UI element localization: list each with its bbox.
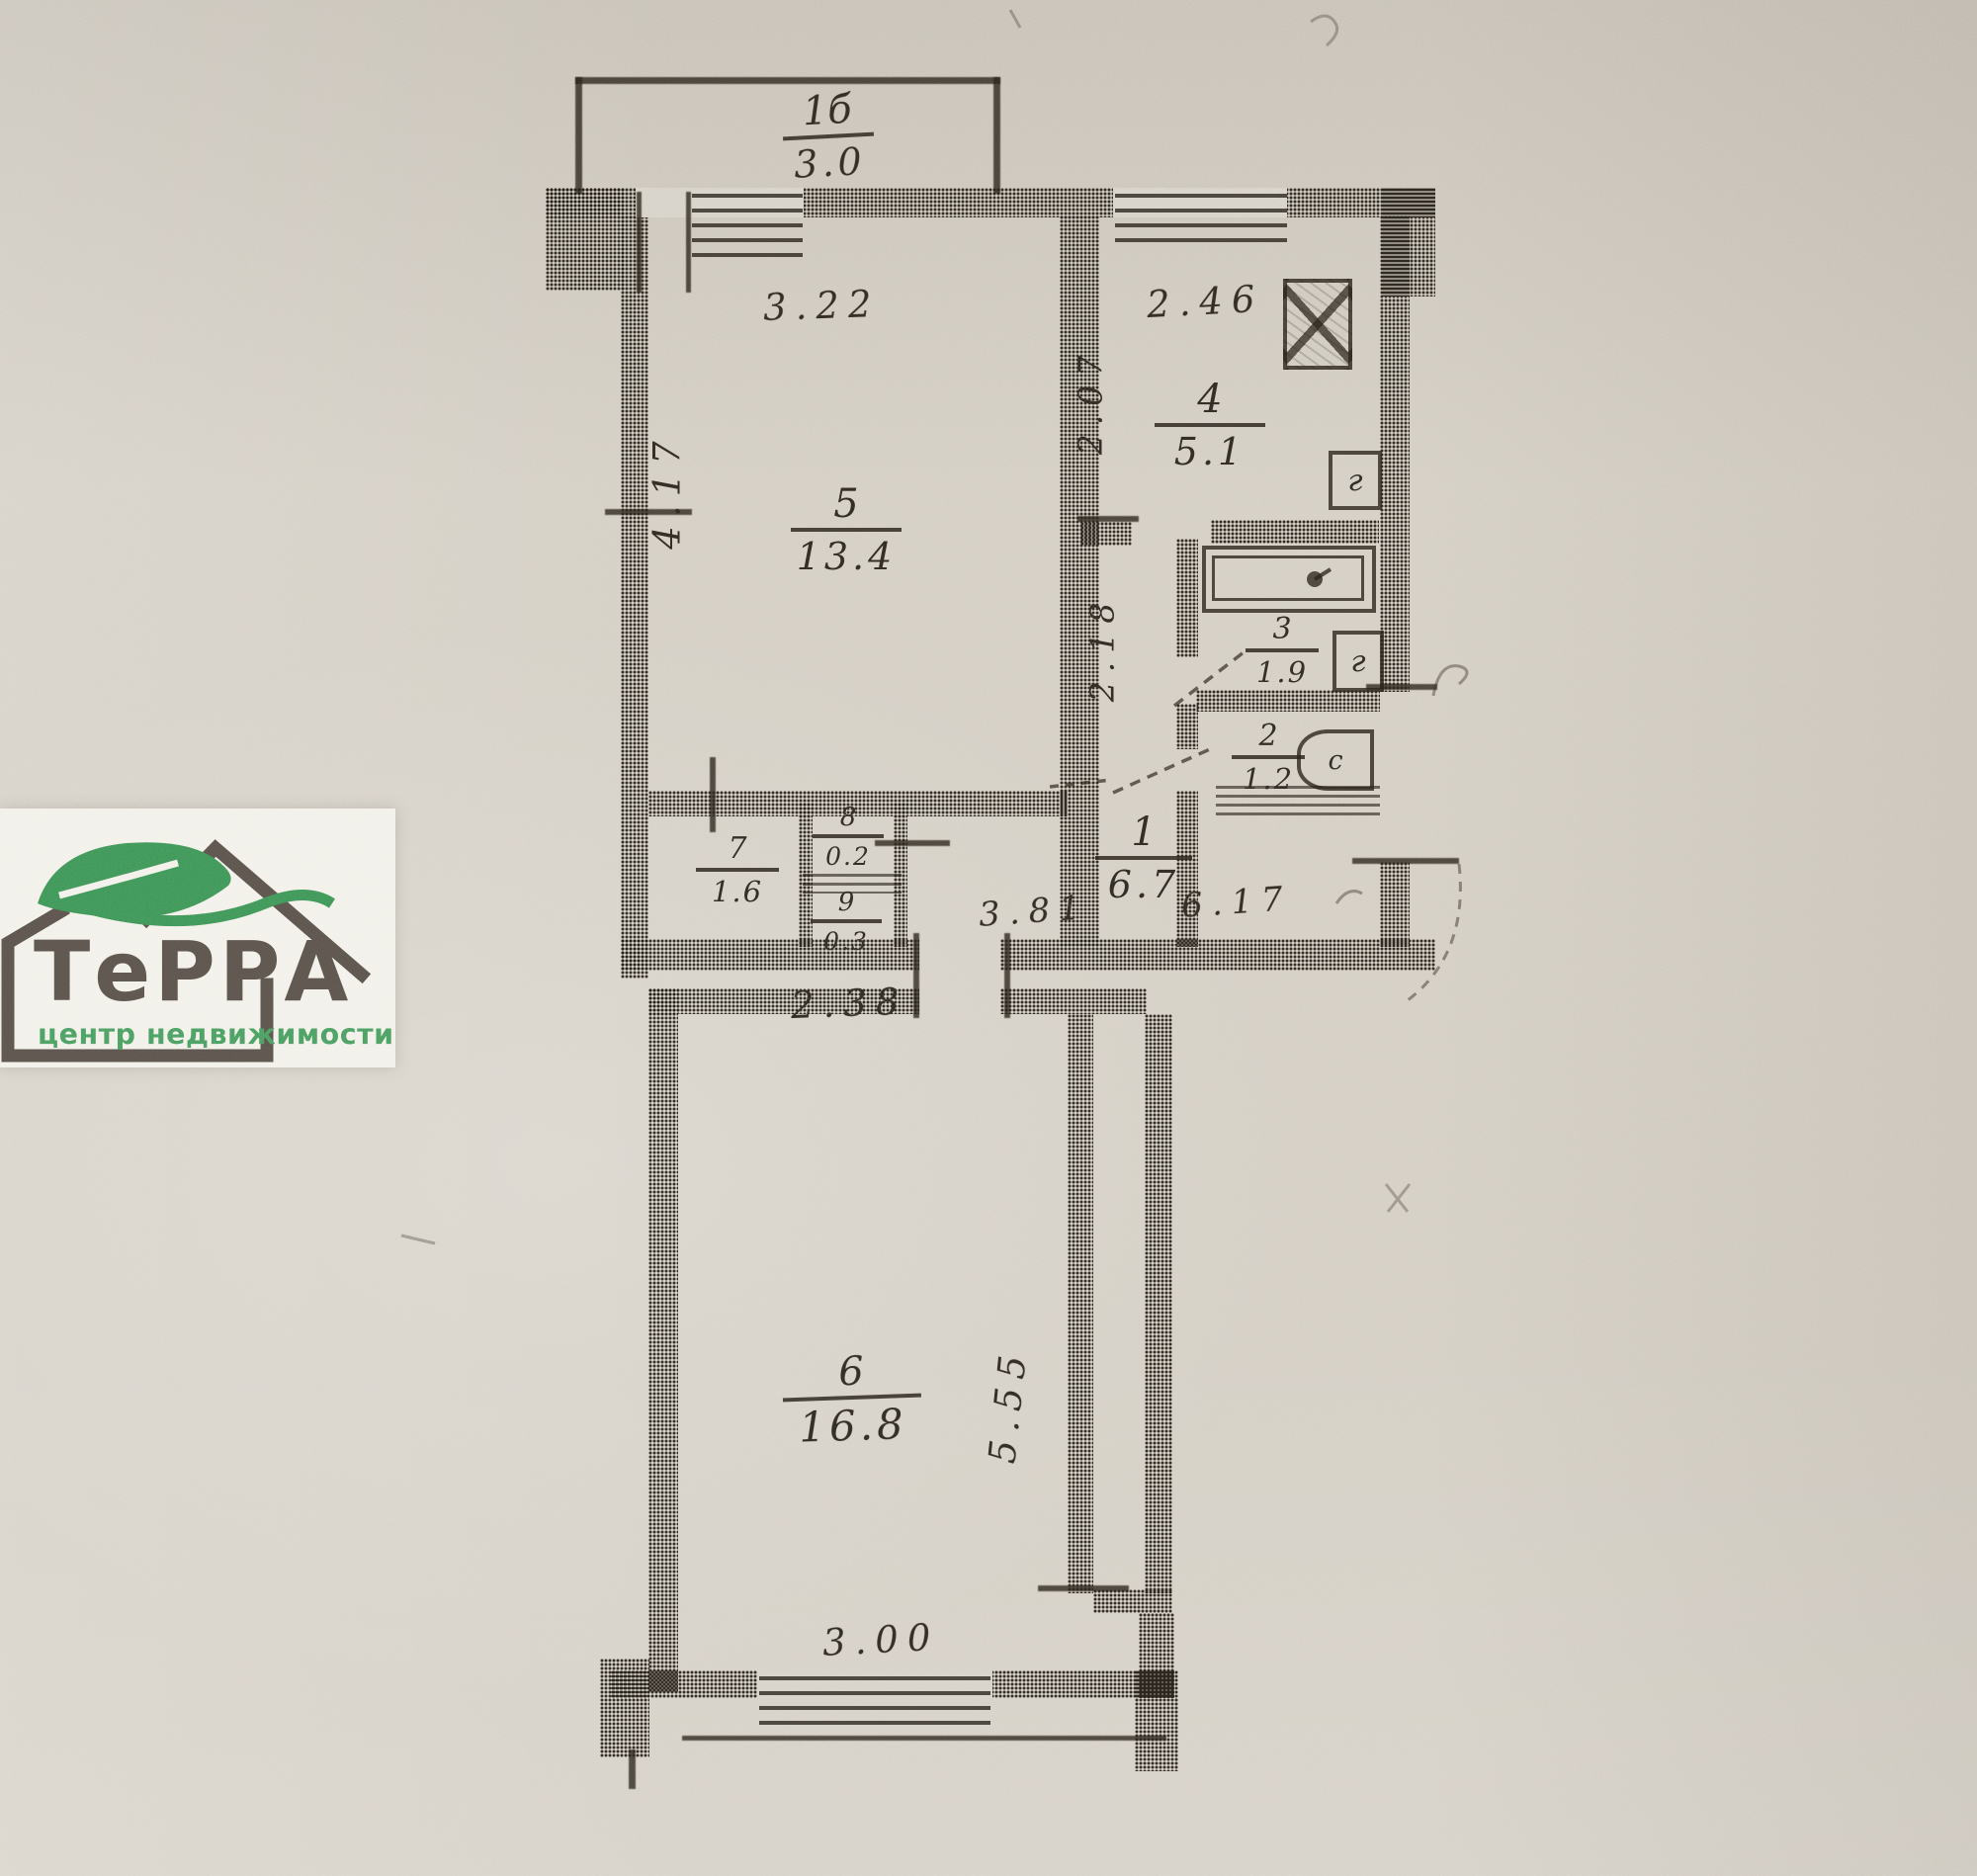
wall-left-upper bbox=[621, 215, 648, 979]
pilaster-top-left bbox=[546, 188, 625, 291]
room-label-9: 90.3 bbox=[811, 890, 882, 954]
scanned-floor-plan-photo: г г с 1б3.0 513.4 45.1 31.9 21.2 16.7 71… bbox=[0, 0, 1977, 1876]
balcony-door-jamb-right bbox=[686, 192, 691, 293]
pilaster-bottom-right bbox=[1135, 1670, 1178, 1771]
room-label-4: 45.1 bbox=[1155, 380, 1265, 470]
dim-corridor-width: 2.38 bbox=[790, 981, 908, 1027]
tagline-text: центр недвижимости bbox=[38, 1018, 394, 1051]
bath-sink-icon: г bbox=[1332, 631, 1384, 692]
wall-right-upper-b bbox=[1380, 862, 1410, 947]
toilet-icon: с bbox=[1297, 729, 1374, 791]
stray-pen-mark-left bbox=[401, 1236, 435, 1243]
room5-window bbox=[692, 194, 803, 257]
toilet-mark: с bbox=[1301, 733, 1370, 787]
leaf-icon bbox=[38, 842, 231, 918]
closet7-door-tick bbox=[710, 757, 716, 832]
wall-bath-left-b bbox=[1176, 704, 1198, 749]
dim-room6-depth: 5.55 bbox=[979, 1320, 1039, 1492]
dim-hall-door-span: 3.81 bbox=[978, 888, 1090, 935]
stray-pen-mark-dim bbox=[1336, 892, 1362, 903]
room-label-7: 71.6 bbox=[696, 834, 779, 906]
stray-pen-mark-top-right bbox=[1311, 16, 1337, 45]
dim-room6-width: 3.00 bbox=[821, 1616, 940, 1664]
wall-upper-bottom-b bbox=[1000, 939, 1435, 971]
terra-logo-card: ТеРРА центр недвижимости bbox=[0, 809, 395, 1067]
balcony-wall-top bbox=[575, 77, 1000, 84]
room-label-balcony: 1б3.0 bbox=[781, 89, 877, 184]
room-label-3: 31.9 bbox=[1246, 615, 1319, 687]
wall-lower-top-b bbox=[1000, 988, 1147, 1014]
bathtub-inner-line bbox=[1212, 555, 1364, 601]
wc-door-swing bbox=[1113, 749, 1210, 793]
kitchen-sink-icon: г bbox=[1329, 451, 1382, 510]
stove-icon bbox=[1283, 279, 1352, 370]
wall-outer-right-lower bbox=[1145, 1014, 1172, 1593]
entrance-door-leaf bbox=[1352, 858, 1459, 864]
dim-kitchen-width: 2.46 bbox=[1146, 278, 1264, 326]
kitchen-window bbox=[1115, 194, 1287, 249]
bath-sink-mark: г bbox=[1336, 635, 1380, 688]
dim-room5-width: 3.22 bbox=[762, 283, 881, 329]
room-label-8: 80.2 bbox=[813, 805, 884, 869]
dim-hall-depth: 2.18 bbox=[1083, 564, 1122, 732]
wall-step-connector bbox=[1093, 1589, 1172, 1613]
pilaster-bottom-left-line bbox=[629, 1749, 636, 1789]
balcony-door-jamb-left bbox=[637, 192, 642, 293]
wall-kitchen-bottom-b bbox=[1211, 520, 1379, 544]
kitchen-sink-mark: г bbox=[1332, 455, 1378, 506]
pilaster-bottom-left bbox=[600, 1659, 649, 1757]
dim-hall-total-width: 6.17 bbox=[1180, 879, 1293, 926]
entrance-door-arc bbox=[1408, 864, 1460, 1000]
stray-pen-mark-middle-right bbox=[1386, 1184, 1410, 1212]
room-label-5: 513.4 bbox=[791, 484, 902, 575]
stray-pen-mark-top bbox=[1010, 10, 1020, 28]
wall-right-upper-a bbox=[1380, 215, 1410, 692]
balcony-wall-left bbox=[575, 77, 582, 194]
stray-pen-mark-right bbox=[1433, 666, 1467, 696]
wall-bath-wc-divider bbox=[1196, 690, 1380, 712]
dim-tick-kitchen-wall bbox=[1077, 516, 1139, 522]
balcony-wall-right bbox=[993, 77, 1000, 194]
dim-room5-depth: 4.17 bbox=[646, 407, 689, 575]
wall-bath-left-a bbox=[1176, 539, 1198, 657]
brand-text: ТеРРА bbox=[34, 923, 352, 1020]
room6-window bbox=[759, 1676, 990, 1736]
wall-kitchen-bottom-a bbox=[1080, 522, 1132, 546]
dim-tick-closet bbox=[875, 840, 950, 846]
wall-room6-right bbox=[1068, 1014, 1093, 1593]
wall-left-lower bbox=[648, 988, 678, 1692]
room-label-1: 16.7 bbox=[1095, 812, 1192, 903]
room-label-2: 21.2 bbox=[1232, 722, 1305, 794]
room6-outer-face-line bbox=[682, 1736, 1166, 1741]
dim-kitchen-depth: 2.07 bbox=[1072, 317, 1110, 485]
room-label-6: 616.8 bbox=[781, 1350, 922, 1449]
room6-door-tick bbox=[1038, 1585, 1129, 1591]
